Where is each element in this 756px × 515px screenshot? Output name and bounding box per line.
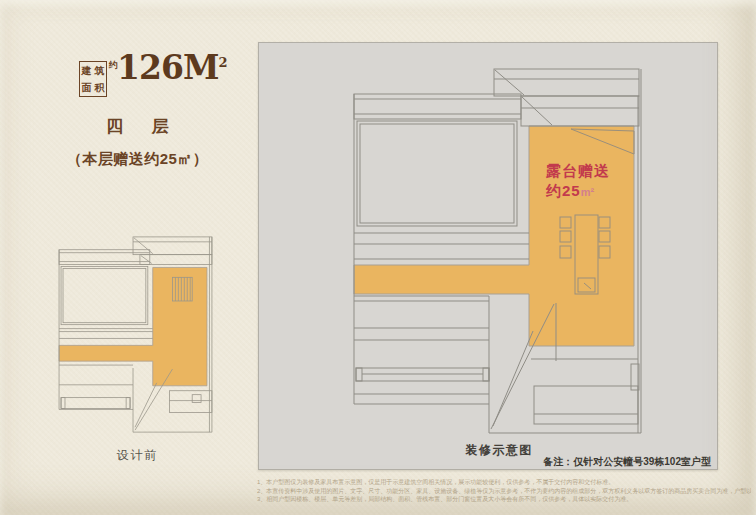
after-floorplan-diagram xyxy=(281,51,661,461)
building-area-box: 建 筑 面 积 xyxy=(79,61,107,97)
disclaimer-text: 1、本户型图仅为装修及家具布置示意图，仅是用于示意建筑空间相关情况，展示功能较便… xyxy=(257,478,751,504)
terrace-gift-line1: 露台赠送 xyxy=(546,161,626,181)
panel-note: 备注：仅针对公安幢号39栋102室户型 xyxy=(543,455,711,469)
terrace-gift-line2: 约25m² xyxy=(546,181,626,202)
area-box-char: 建 xyxy=(82,65,92,76)
area-box-char: 积 xyxy=(95,82,105,93)
floor-title: 四 层 xyxy=(40,115,235,138)
after-floorplan-panel: 露台赠送 约25m² 装修示意图 备注：仅针对公安幢号39栋102室户型 xyxy=(258,42,718,470)
area-box-char: 筑 xyxy=(95,65,105,76)
terrace-gift-label: 露台赠送 约25m² xyxy=(546,161,626,202)
area-box-char: 面 xyxy=(82,82,92,93)
floor-subtitle: （本层赠送约25㎡） xyxy=(40,150,235,169)
area-value: 126M2 xyxy=(117,48,227,87)
disclaimer-line: 3、相同户型因楼栋、楼层、单元等差别，局部结构、面积、管线布置、部分门窗位置及大… xyxy=(257,495,751,504)
terrace-gift-unit: m² xyxy=(581,186,594,198)
disclaimer-line: 2、本宣传资料中涉及使用的图片、文字、尺寸、功能分区、家具、设施设备、绿植等仅为… xyxy=(257,487,751,496)
before-plan-caption: 设计前 xyxy=(40,447,235,464)
area-exponent: 2 xyxy=(218,55,227,70)
area-title-block: 建 筑 面 积 约 126M2 xyxy=(78,52,228,100)
before-floorplan-diagram xyxy=(45,230,225,442)
disclaimer-line: 1、本户型图仅为装修及家具布置示意图，仅是用于示意建筑空间相关情况，展示功能较便… xyxy=(257,478,751,487)
